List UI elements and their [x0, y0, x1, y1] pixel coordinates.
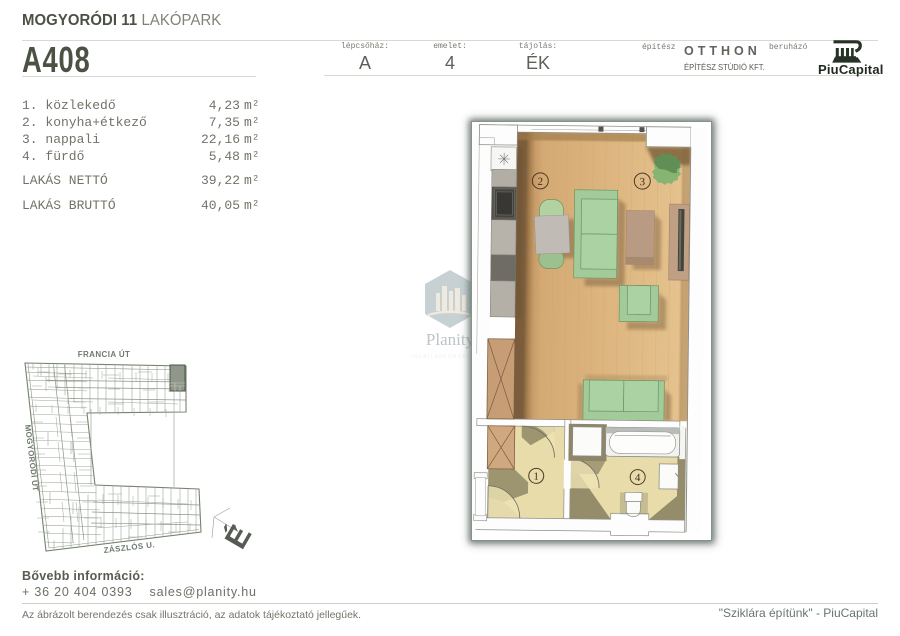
svg-text:FRANCIA ÚT: FRANCIA ÚT [78, 350, 131, 359]
svg-text:É: É [218, 519, 259, 554]
svg-text:1: 1 [533, 471, 539, 483]
svg-text:4: 4 [635, 472, 641, 484]
svg-text:2: 2 [537, 176, 543, 188]
svg-text:3: 3 [639, 176, 645, 188]
svg-text:Planity: Planity [426, 330, 475, 349]
